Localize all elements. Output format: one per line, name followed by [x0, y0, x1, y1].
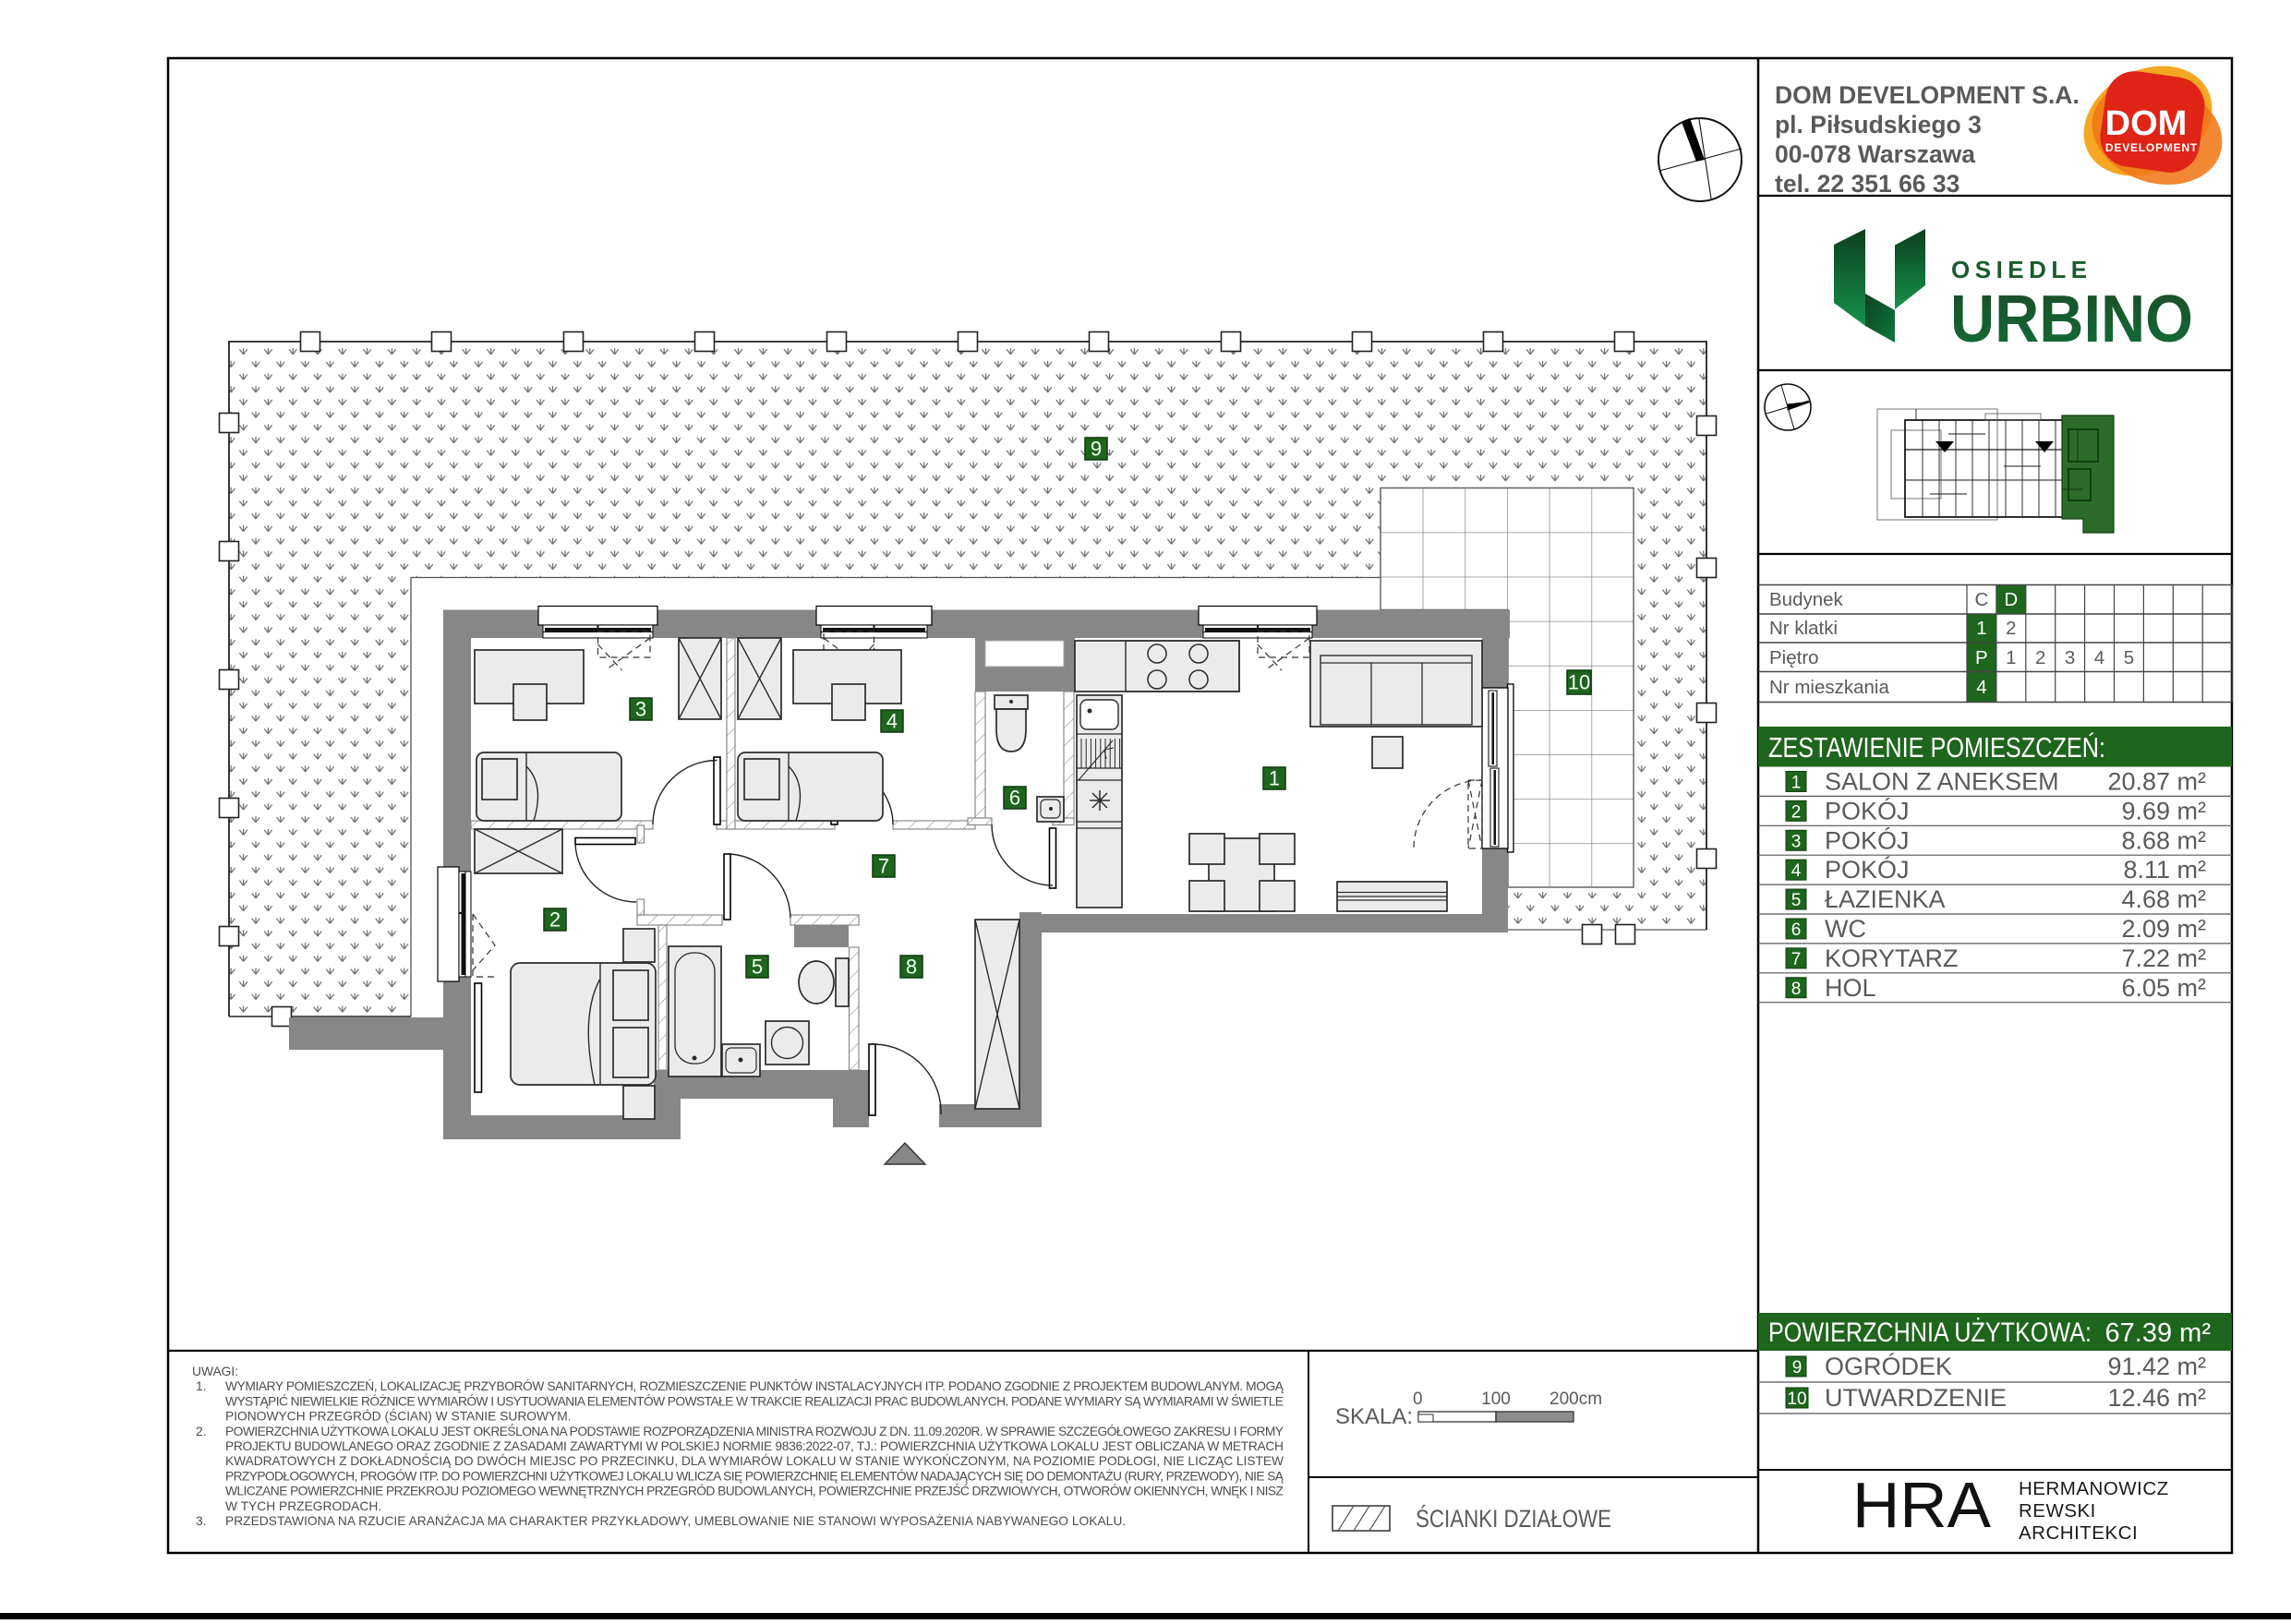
- svg-text:3: 3: [2065, 647, 2075, 668]
- svg-text:6: 6: [1009, 787, 1020, 810]
- svg-text:REWSKI: REWSKI: [2019, 1500, 2096, 1522]
- svg-text:2: 2: [549, 908, 561, 932]
- svg-text:200cm: 200cm: [1549, 1389, 1602, 1409]
- svg-text:6.05 m²: 6.05 m²: [2121, 974, 2206, 1002]
- svg-text:7: 7: [878, 855, 889, 878]
- svg-text:Budynek: Budynek: [1769, 589, 1844, 610]
- svg-text:3: 3: [1791, 832, 1802, 851]
- svg-text:SALON Z ANEKSEM: SALON Z ANEKSEM: [1825, 767, 2059, 795]
- svg-text:POKÓJ: POKÓJ: [1825, 855, 1910, 884]
- svg-text:1: 1: [1269, 767, 1280, 790]
- svg-text:P: P: [1975, 647, 1988, 668]
- svg-text:HERMANOWICZ: HERMANOWICZ: [2019, 1478, 2169, 1499]
- svg-text:URBINO: URBINO: [1950, 283, 2193, 356]
- svg-text:5: 5: [752, 956, 763, 979]
- svg-text:5: 5: [1791, 891, 1802, 910]
- svg-text:PROJEKTU BUDOWLANEGO ORAZ ZGO: PROJEKTU BUDOWLANEGO ORAZ ZGODNIE Z ZASA…: [225, 1438, 1284, 1453]
- svg-text:KORYTARZ: KORYTARZ: [1825, 944, 1959, 972]
- svg-text:ŚCIANKI DZIAŁOWE: ŚCIANKI DZIAŁOWE: [1416, 1503, 1611, 1533]
- svg-text:WYMIARY POMIESZCZEŃ, LOKALIZAC: WYMIARY POMIESZCZEŃ, LOKALIZACJĘ PRZYBOR…: [225, 1378, 1284, 1393]
- svg-text:9: 9: [1091, 438, 1102, 461]
- svg-text:4: 4: [2094, 647, 2104, 668]
- svg-text:C: C: [1974, 589, 1988, 610]
- svg-text:SKALA:: SKALA:: [1335, 1404, 1413, 1429]
- svg-text:KWADRATOWYCH Z DOKŁADNOŚCIĄ: KWADRATOWYCH Z DOKŁADNOŚCIĄ DO DWÓCH MIE…: [225, 1452, 1284, 1468]
- svg-text:100: 100: [1481, 1389, 1511, 1409]
- svg-text:8: 8: [906, 956, 917, 979]
- svg-text:Piętro: Piętro: [1769, 647, 1819, 668]
- svg-text:WLICZANE POWIERZCHNIE PRZEKRO: WLICZANE POWIERZCHNIE PRZEKROJU POZIOMEG…: [225, 1483, 1284, 1498]
- svg-text:D: D: [2004, 589, 2018, 610]
- svg-text:PRZYPODŁOGOWYCH, PROGÓW ITP. D: PRZYPODŁOGOWYCH, PROGÓW ITP. DO POWIERZC…: [225, 1467, 1284, 1483]
- svg-text:8.11 m²: 8.11 m²: [2123, 856, 2206, 884]
- svg-text:PIONOWYCH PRZEGRÓD (ŚCIAN) W S: PIONOWYCH PRZEGRÓD (ŚCIAN) W STANIE SURO…: [225, 1408, 572, 1424]
- svg-text:2.: 2.: [196, 1425, 207, 1438]
- svg-text:WYSTĄPIĆ NIEWIELKIE RÓŻNICE WY: WYSTĄPIĆ NIEWIELKIE RÓŻNICE WYMIARÓW I U…: [225, 1392, 1284, 1408]
- svg-text:OGRÓDEK: OGRÓDEK: [1825, 1352, 1952, 1380]
- svg-text:5: 5: [2124, 647, 2134, 668]
- svg-text:12.46 m²: 12.46 m²: [2107, 1384, 2206, 1412]
- svg-text:2.09 m²: 2.09 m²: [2121, 915, 2206, 943]
- svg-text:6: 6: [1791, 920, 1802, 940]
- svg-text:9.69 m²: 9.69 m²: [2121, 797, 2206, 824]
- svg-text:20.87 m²: 20.87 m²: [2107, 767, 2206, 795]
- svg-text:W TYCH PRZEGRODACH.: W TYCH PRZEGRODACH.: [225, 1499, 381, 1513]
- svg-text:DOM DEVELOPMENT S.A.: DOM DEVELOPMENT S.A.: [1775, 81, 2080, 109]
- svg-text:2: 2: [1791, 802, 1802, 822]
- svg-text:ZESTAWIENIE POMIESZCZEŃ:: ZESTAWIENIE POMIESZCZEŃ:: [1768, 731, 2105, 764]
- svg-text:3.: 3.: [196, 1514, 207, 1528]
- svg-text:DEVELOPMENT: DEVELOPMENT: [2105, 141, 2198, 154]
- svg-text:DOM: DOM: [2105, 104, 2188, 143]
- svg-text:4: 4: [1791, 861, 1802, 881]
- svg-text:POKÓJ: POKÓJ: [1825, 796, 1910, 824]
- svg-text:ARCHITEKCI: ARCHITEKCI: [2019, 1522, 2138, 1544]
- svg-text:Nr klatki: Nr klatki: [1769, 618, 1838, 639]
- svg-text:ŁAZIENKA: ŁAZIENKA: [1825, 885, 1946, 913]
- svg-text:10: 10: [1787, 1389, 1806, 1409]
- svg-text:00-078 Warszawa: 00-078 Warszawa: [1775, 140, 1975, 168]
- svg-text:pl. Piłsudskiego 3: pl. Piłsudskiego 3: [1775, 111, 1982, 138]
- svg-text:POWIERZCHNIA UŻYTKOWA LOKALU: POWIERZCHNIA UŻYTKOWA LOKALU JEST OKREŚL…: [225, 1423, 1284, 1438]
- svg-text:8.68 m²: 8.68 m²: [2121, 826, 2206, 854]
- svg-text:8: 8: [1791, 980, 1802, 999]
- svg-text:POWIERZCHNIA UŻYTKOWA:: POWIERZCHNIA UŻYTKOWA:: [1768, 1317, 2092, 1348]
- svg-text:WC: WC: [1825, 915, 1866, 943]
- svg-text:1: 1: [1791, 773, 1802, 792]
- svg-text:UWAGI:: UWAGI:: [192, 1365, 238, 1378]
- svg-text:7.22 m²: 7.22 m²: [2121, 944, 2206, 972]
- svg-text:OSIEDLE: OSIEDLE: [1951, 256, 2092, 283]
- svg-text:67.39 m²: 67.39 m²: [2105, 1318, 2212, 1348]
- svg-text:10: 10: [1568, 671, 1590, 694]
- svg-text:Nr mieszkania: Nr mieszkania: [1769, 677, 1889, 698]
- svg-text:4.68 m²: 4.68 m²: [2121, 885, 2206, 913]
- svg-text:4: 4: [886, 710, 898, 733]
- svg-text:PRZEDSTAWIONA NA RZUCIE ARANŻA: PRZEDSTAWIONA NA RZUCIE ARANŻACJA MA CHA…: [225, 1512, 1126, 1528]
- svg-text:1.: 1.: [196, 1379, 207, 1393]
- svg-text:9: 9: [1792, 1358, 1803, 1377]
- svg-text:UTWARDZENIE: UTWARDZENIE: [1825, 1384, 2007, 1412]
- svg-text:HRA: HRA: [1852, 1469, 1991, 1541]
- svg-text:1: 1: [2006, 647, 2016, 668]
- svg-text:7: 7: [1791, 950, 1802, 969]
- svg-text:HOL: HOL: [1825, 974, 1876, 1002]
- svg-text:0: 0: [1413, 1389, 1423, 1409]
- svg-text:4: 4: [1976, 677, 1986, 698]
- svg-text:2: 2: [2035, 647, 2045, 668]
- svg-text:1: 1: [1976, 618, 1986, 639]
- svg-text:3: 3: [635, 698, 646, 721]
- svg-text:2: 2: [2006, 618, 2016, 639]
- svg-text:tel. 22 351 66 33: tel. 22 351 66 33: [1775, 170, 1959, 198]
- svg-text:POKÓJ: POKÓJ: [1825, 825, 1910, 854]
- svg-text:91.42 m²: 91.42 m²: [2107, 1353, 2206, 1380]
